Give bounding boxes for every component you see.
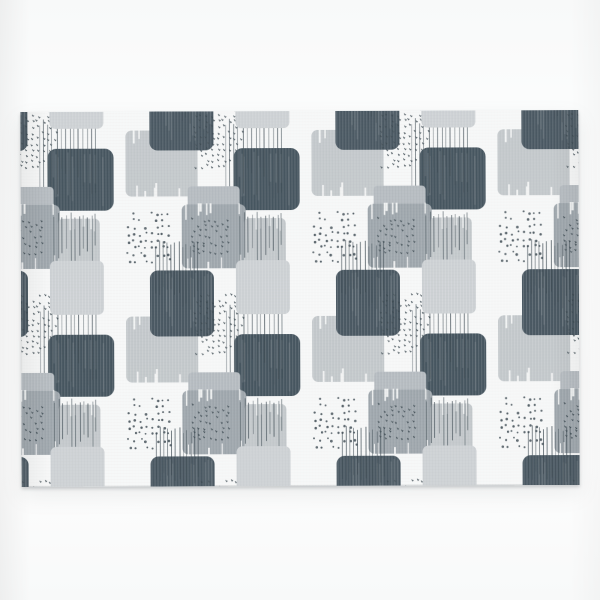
backdrop-wall [0, 0, 600, 600]
rug-product [20, 110, 579, 487]
rug-edge-vignette [20, 110, 579, 487]
rug-pattern-svg [20, 110, 579, 487]
